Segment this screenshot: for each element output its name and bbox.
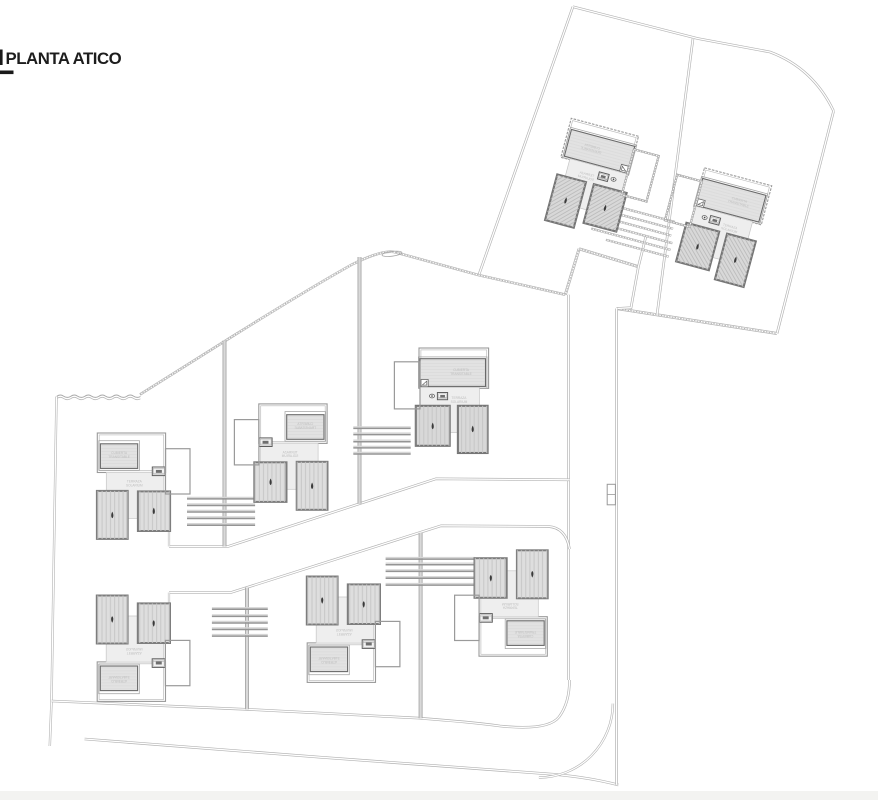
svg-text:TRANSITABLE: TRANSITABLE [108,455,130,459]
svg-text:PLANTA ATICO: PLANTA ATICO [6,49,122,68]
svg-text:TRANSITABLE: TRANSITABLE [295,426,317,430]
svg-text:SOLARIUM: SOLARIUM [126,647,143,651]
svg-text:SOLARIUM: SOLARIUM [126,483,143,487]
svg-text:TRANSITABLE: TRANSITABLE [108,675,130,679]
svg-text:SOLARIUM: SOLARIUM [502,602,519,606]
svg-text:TRANSITABLE: TRANSITABLE [450,372,472,376]
svg-text:SOLARIUM: SOLARIUM [336,628,353,632]
svg-text:TRANSITABLE: TRANSITABLE [318,656,340,660]
svg-text:TRANSITABLE: TRANSITABLE [515,630,537,634]
svg-text:SOLARIUM: SOLARIUM [451,400,468,404]
svg-text:SOLARIUM: SOLARIUM [281,454,298,458]
